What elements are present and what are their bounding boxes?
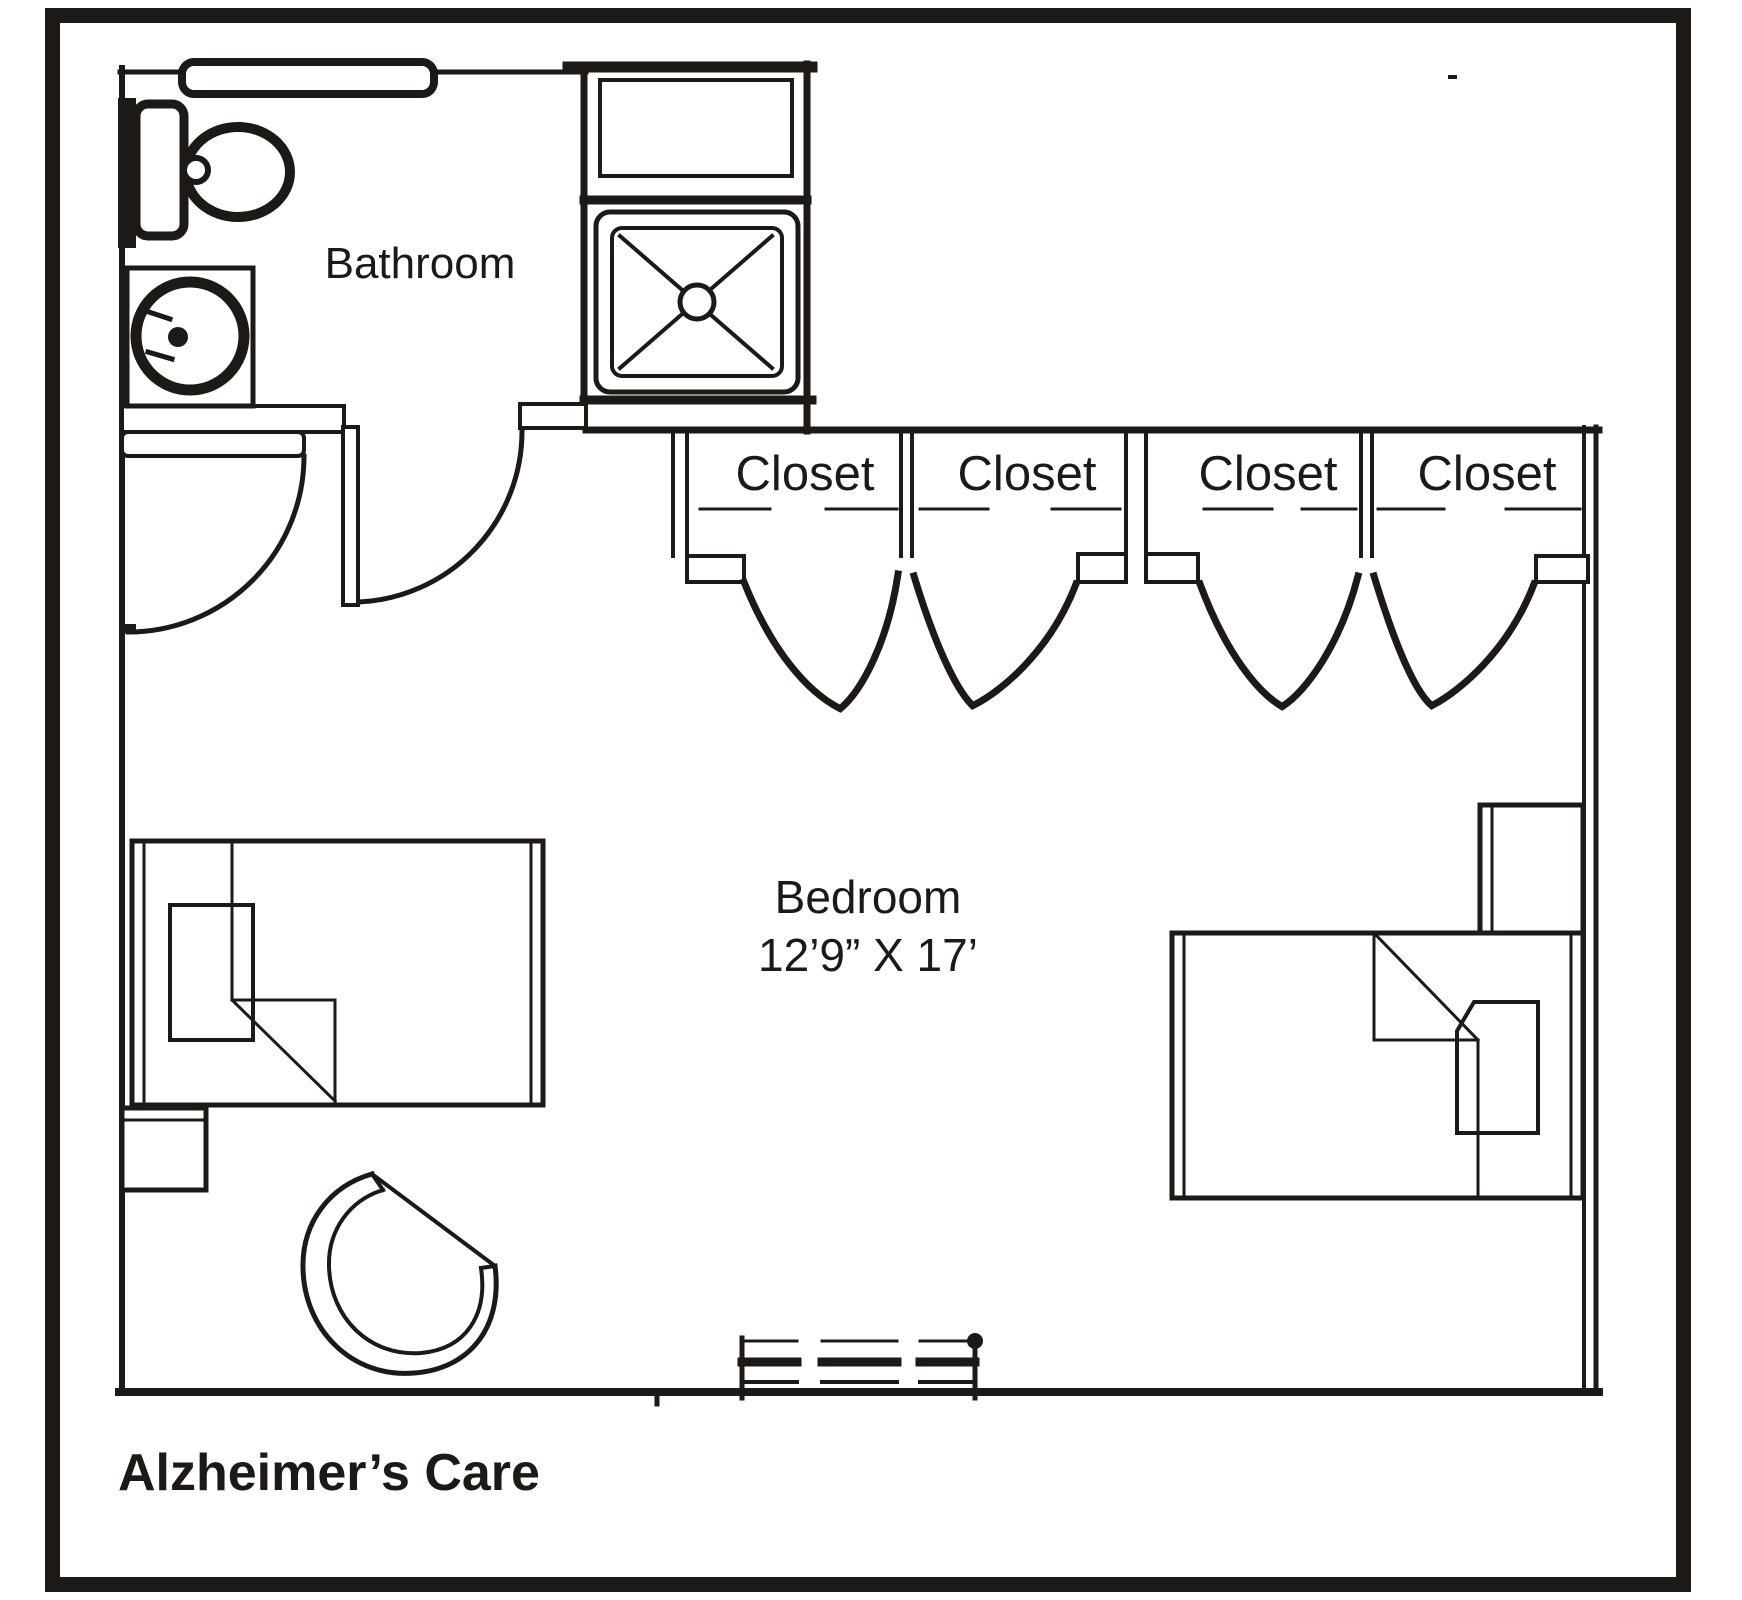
closet3-label: Closet <box>1199 447 1338 501</box>
closet1-return-wall <box>687 556 744 582</box>
floor-plan-page: Bathroom Closet Closet Closet Closet Bed… <box>0 0 1742 1600</box>
window-corner-dot <box>967 1333 983 1349</box>
entry-door-leaf <box>343 427 358 605</box>
closet4-doors <box>1374 576 1534 705</box>
wall-closet1-left <box>673 430 687 556</box>
bedroom-dimensions: 12’9” X 17’ <box>758 929 978 981</box>
print-artifact-dot <box>1448 75 1457 79</box>
nightstand-right <box>1480 805 1583 933</box>
tub-chair-inner <box>329 1190 482 1353</box>
wall-entry-jamb <box>520 404 586 428</box>
closet4-label: Closet <box>1418 447 1557 501</box>
wall-below-sink <box>122 406 344 432</box>
closet4-return-wall <box>1536 556 1588 582</box>
shower-bench-cabinet <box>600 80 792 176</box>
wall-vestibule <box>122 432 304 456</box>
bathroom-door-arc <box>128 456 304 632</box>
closet3-doors <box>1200 576 1358 706</box>
bathroom-label: Bathroom <box>325 239 516 288</box>
closet1-label: Closet <box>736 447 875 501</box>
bed-right-pillow <box>1457 1002 1538 1133</box>
toilet-hinge <box>184 158 208 182</box>
closet2-return-wall <box>1078 554 1126 582</box>
tub-chair-outer <box>303 1174 496 1373</box>
page-frame-border <box>53 16 1684 1585</box>
page-title: Alzheimer’s Care <box>118 1444 540 1502</box>
sink-drain <box>168 327 188 347</box>
wall-closet-divider-b <box>1361 430 1372 556</box>
wall-closet-unit-divider <box>1126 430 1146 576</box>
closet2-doors <box>914 576 1076 705</box>
bed-left-pillow <box>170 905 253 1040</box>
tub-chair-seat-front <box>372 1174 495 1268</box>
shower-drain <box>680 285 714 319</box>
entry-door-arc <box>359 431 522 602</box>
toilet-tank <box>136 104 184 236</box>
closet3-return-wall <box>1146 554 1198 582</box>
tub-chair <box>303 1174 496 1373</box>
closet2-label: Closet <box>958 447 1097 501</box>
floor-plan-drawing: Bathroom Closet Closet Closet Closet Bed… <box>0 0 1742 1600</box>
wall-closet-divider-a <box>901 430 912 556</box>
closet1-doors <box>744 574 898 708</box>
bathroom-mirror-bar <box>182 62 434 94</box>
bedroom-label: Bedroom <box>775 871 962 923</box>
